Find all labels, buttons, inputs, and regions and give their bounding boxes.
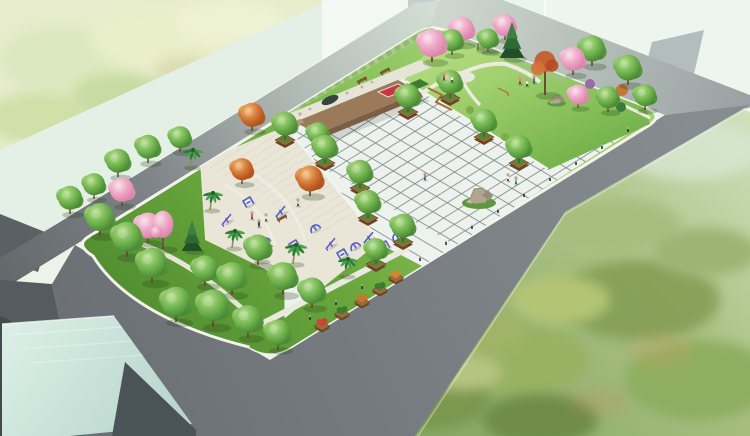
- bollard: [361, 284, 363, 289]
- shrub: [585, 79, 595, 89]
- bollard: [497, 208, 499, 213]
- bollard: [419, 256, 421, 261]
- tree-g: [311, 135, 338, 171]
- shrub: [466, 106, 474, 114]
- tree-g: [389, 214, 416, 250]
- bollard: [471, 224, 473, 229]
- tree-g: [394, 84, 421, 120]
- tree-g: [354, 190, 381, 226]
- bollard: [601, 144, 603, 149]
- bollard: [575, 160, 577, 165]
- tree-g: [470, 109, 497, 145]
- bollard: [335, 300, 337, 305]
- tree-g: [505, 135, 532, 171]
- bollard: [627, 127, 629, 132]
- bollard: [309, 315, 311, 320]
- tree-g: [271, 112, 298, 148]
- tree-g: [363, 238, 388, 272]
- bollard: [445, 240, 447, 245]
- bollard: [523, 192, 525, 197]
- rendering-canvas: [0, 0, 750, 436]
- bollard: [549, 176, 551, 181]
- park-rendering: [0, 0, 750, 436]
- tree-g: [436, 70, 463, 106]
